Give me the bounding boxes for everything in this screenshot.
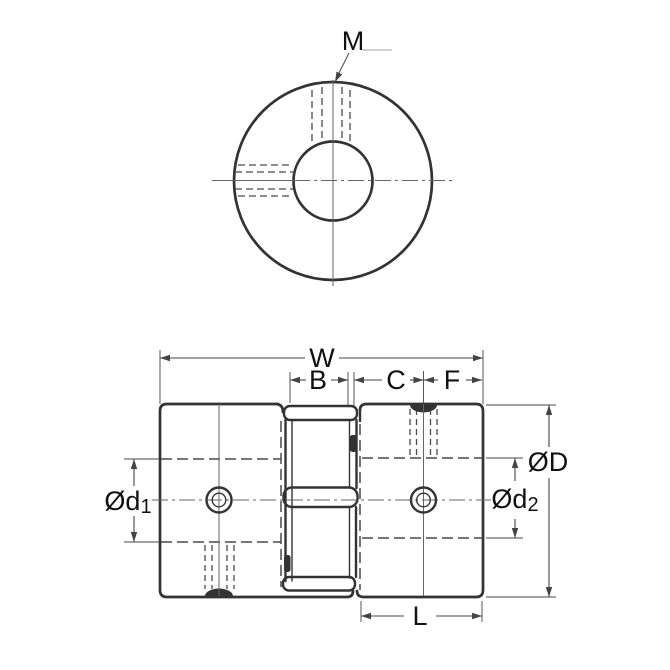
dimension-hub-length: L — [361, 601, 482, 631]
jaw-section — [283, 406, 358, 591]
coupling-technical-drawing: M — [0, 0, 670, 670]
dimension-jaw-width: B — [290, 365, 348, 405]
leader-arrowhead — [335, 72, 342, 82]
dimension-f: F — [424, 365, 482, 395]
vertical-setscrew-hole-hidden-lines — [312, 87, 350, 142]
set-screw-leader: M — [335, 26, 392, 82]
dimension-bore-left: Ød1 — [104, 459, 160, 542]
jaw-width-label: B — [309, 365, 327, 395]
drawing-canvas: M — [0, 0, 670, 670]
bore-left-label: Ød1 — [104, 486, 151, 518]
top-view-centerlines — [212, 80, 456, 286]
side-section-view — [152, 404, 491, 597]
bottom-jaw-band — [283, 577, 355, 591]
c-label: C — [386, 365, 406, 395]
top-jaw-band — [284, 406, 357, 420]
f-label: F — [444, 365, 461, 395]
side-view-centerlines — [152, 404, 491, 596]
top-left-step — [277, 404, 283, 412]
spider-edge-lower — [284, 555, 291, 572]
middle-jaw-band — [284, 488, 358, 508]
outer-diameter-label: ØD — [528, 447, 569, 477]
dimension-c: C — [354, 365, 424, 406]
top-end-view: M — [212, 26, 456, 286]
bore-right-label: Ød2 — [491, 484, 538, 516]
hub-length-label: L — [412, 601, 427, 631]
set-screw-label: M — [342, 26, 365, 56]
spider-edge-upper — [350, 435, 357, 452]
